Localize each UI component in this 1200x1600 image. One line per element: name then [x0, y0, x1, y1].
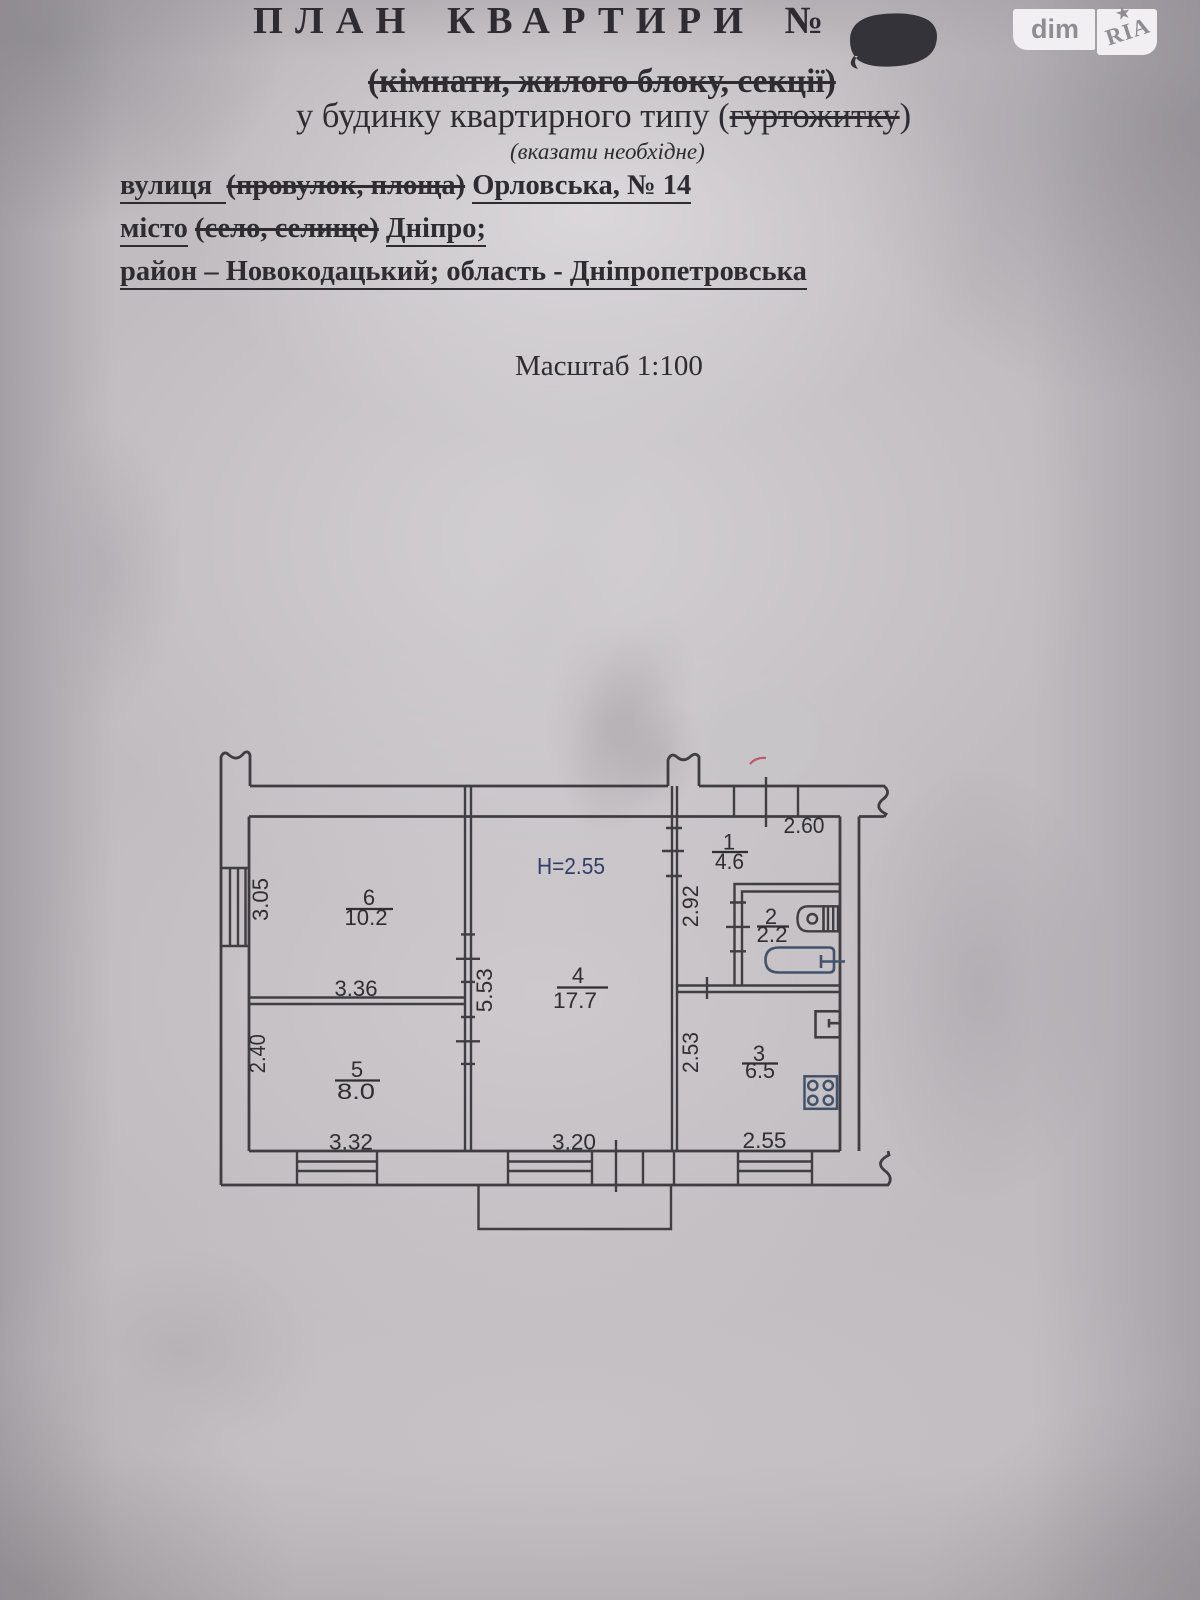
svg-text:3.36: 3.36	[335, 976, 378, 1001]
svg-text:3.32: 3.32	[329, 1130, 373, 1155]
svg-text:6.5: 6.5	[745, 1058, 775, 1083]
svg-text:2.2: 2.2	[757, 922, 788, 947]
svg-text:4: 4	[572, 963, 584, 988]
svg-text:2.55: 2.55	[743, 1128, 787, 1153]
svg-text:8.0: 8.0	[337, 1079, 375, 1104]
svg-text:2.92: 2.92	[678, 885, 703, 927]
svg-text:3.05: 3.05	[248, 878, 273, 921]
svg-text:2.40: 2.40	[245, 1034, 270, 1073]
svg-text:H=2.55: H=2.55	[537, 853, 605, 879]
svg-text:17.7: 17.7	[553, 988, 597, 1013]
svg-text:3.20: 3.20	[552, 1130, 596, 1155]
svg-text:2.53: 2.53	[678, 1032, 703, 1073]
svg-text:5.53: 5.53	[472, 968, 497, 1012]
svg-text:10.2: 10.2	[345, 905, 388, 930]
svg-text:4.6: 4.6	[715, 849, 744, 874]
svg-text:2.60: 2.60	[784, 813, 825, 838]
